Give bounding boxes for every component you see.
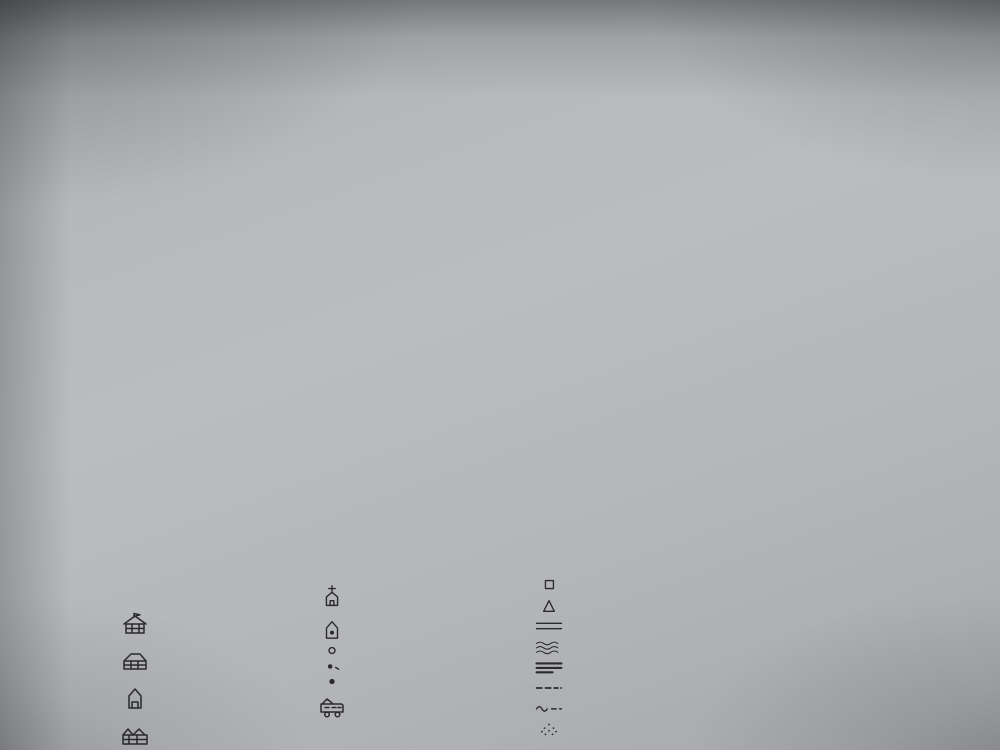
legend-row-klp-spkp xyxy=(532,721,722,737)
jalan-dusun-icon xyxy=(532,659,566,675)
legend-row-kantor-desa xyxy=(120,723,330,749)
legend-row-sekolah xyxy=(120,612,330,638)
titik-air-icon xyxy=(532,598,566,614)
legend-row-posyandu xyxy=(120,686,330,712)
batas-desa-icon xyxy=(532,680,566,696)
legend-row-rumah-miskin xyxy=(318,643,533,658)
legend-row-titik-air xyxy=(532,598,722,614)
rumah-sedang-icon xyxy=(318,674,346,688)
legend-row-jalan-raya xyxy=(532,618,722,634)
posyandu-icon xyxy=(120,686,150,712)
legend-row-batas-desa xyxy=(532,680,722,696)
legend-row-rumah-kaya xyxy=(318,659,533,673)
school-icon xyxy=(120,612,150,638)
biara-icon xyxy=(120,649,150,675)
legend-column-facilities xyxy=(318,584,533,719)
rumah-miskin-icon xyxy=(318,643,346,658)
gereja-icon xyxy=(318,584,346,609)
pustu-icon xyxy=(318,618,346,640)
legend-row-biara xyxy=(120,649,330,675)
legend-row-terminal-bis xyxy=(318,695,533,719)
legend-column-lines xyxy=(532,577,722,737)
map-photo xyxy=(0,0,1000,750)
rumah-kaya-icon xyxy=(318,659,346,673)
terminal-bis-icon xyxy=(318,695,348,719)
jalan-raya-icon xyxy=(532,618,566,634)
kali-icon xyxy=(532,639,566,655)
map-art-layer xyxy=(0,0,1000,750)
batas-rt-icon xyxy=(532,700,566,716)
legend-row-pustu xyxy=(318,618,533,640)
klp-spkp-icon xyxy=(532,721,566,737)
embung-icon xyxy=(532,577,566,593)
legend-row-rumah-sedang xyxy=(318,674,533,688)
kantor-desa-icon xyxy=(120,723,150,749)
legend-row-jalan-dusun xyxy=(532,659,722,675)
legend-row-gereja xyxy=(318,584,533,609)
legend-column-buildings xyxy=(120,612,330,749)
legend-row-kali xyxy=(532,639,722,655)
legend-row-embung xyxy=(532,577,722,593)
legend-row-batas-rt xyxy=(532,700,722,716)
